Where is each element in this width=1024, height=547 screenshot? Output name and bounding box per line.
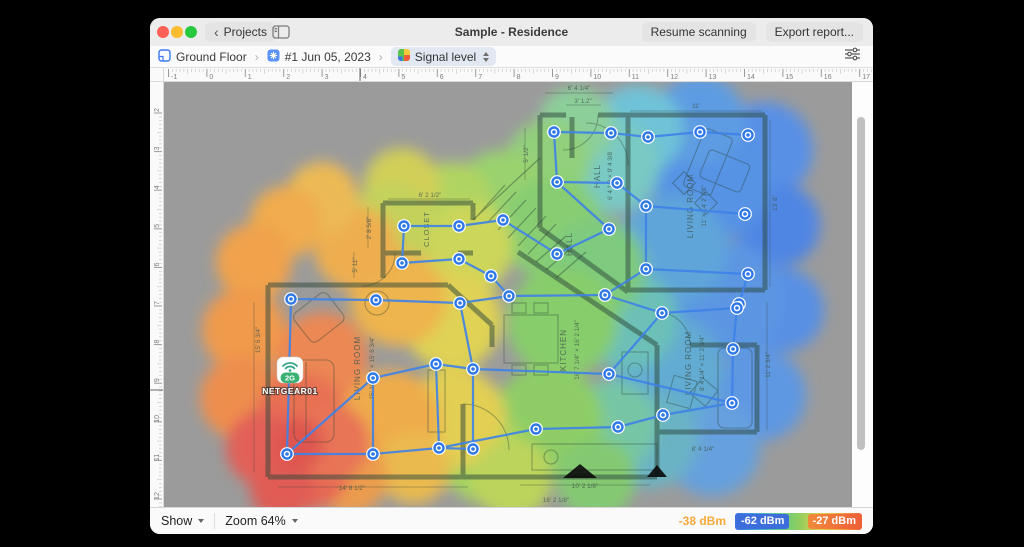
breadcrumb-toolbar: Ground Floor › #1 Jun 05, 2023 › [150, 46, 873, 68]
legend-min-badge: -62 dBm [736, 514, 789, 529]
svg-text:7: 7 [154, 301, 161, 305]
survey-point[interactable] [727, 343, 740, 356]
svg-text:15: 15 [785, 74, 793, 81]
svg-text:11: 11 [632, 74, 639, 81]
survey-point[interactable] [603, 223, 616, 236]
survey-point[interactable] [640, 200, 653, 213]
svg-text:16' 7 1/4" × 16' 2 1/4": 16' 7 1/4" × 16' 2 1/4" [574, 320, 581, 380]
svg-text:2: 2 [286, 74, 290, 81]
left-ruler: 23456789101112 [150, 82, 164, 507]
svg-text:5' 11": 5' 11" [352, 257, 359, 272]
survey-point[interactable] [605, 127, 618, 140]
survey-point[interactable] [367, 372, 380, 385]
snapshot-icon [267, 49, 280, 65]
svg-text:LIVING ROOM: LIVING ROOM [684, 331, 693, 395]
survey-point[interactable] [467, 363, 480, 376]
svg-text:3: 3 [154, 147, 161, 151]
survey-point[interactable] [548, 126, 561, 139]
cursor-signal-value: -38 dBm [679, 514, 726, 528]
svg-text:8: 8 [517, 74, 521, 81]
svg-text:4: 4 [154, 185, 161, 189]
svg-text:10: 10 [593, 74, 601, 81]
svg-text:HALL: HALL [565, 232, 574, 256]
svg-text:2' 8 5/8": 2' 8 5/8" [366, 217, 373, 240]
svg-text:10: 10 [154, 415, 161, 423]
svg-text:14: 14 [747, 74, 755, 81]
svg-text:-1: -1 [171, 74, 177, 81]
visualization-selector[interactable]: Signal level [391, 47, 496, 66]
svg-text:6' 4 1/2 × 9' 4 3/8: 6' 4 1/2 × 9' 4 3/8 [607, 151, 614, 200]
sidebar-toggle-icon[interactable] [272, 25, 290, 44]
app-window: ‹ Projects Sample - Residence Resume sca… [150, 18, 873, 534]
svg-text:11' × 14' 2 7/8": 11' × 14' 2 7/8" [701, 185, 708, 226]
survey-point[interactable] [642, 131, 655, 144]
survey-point[interactable] [530, 423, 543, 436]
svg-text:10' 2 1/8": 10' 2 1/8" [572, 483, 598, 490]
svg-text:1: 1 [248, 74, 252, 81]
survey-point[interactable] [281, 448, 294, 461]
heatmap-icon [398, 49, 410, 64]
svg-text:KITCHEN: KITCHEN [559, 329, 568, 371]
survey-point[interactable] [742, 268, 755, 281]
survey-point[interactable] [430, 358, 443, 371]
zoom-window-button[interactable] [185, 26, 197, 38]
back-button-label: Projects [224, 25, 267, 39]
survey-point[interactable] [656, 307, 669, 320]
survey-point[interactable] [742, 129, 755, 142]
svg-text:9: 9 [555, 74, 559, 81]
survey-point[interactable] [612, 421, 625, 434]
status-bar: Show Zoom 64% -38 dBm -62 dBm -27 dBm [150, 507, 873, 534]
svg-text:6' 2 1/2": 6' 2 1/2" [419, 192, 442, 199]
filter-sliders-icon[interactable] [844, 47, 861, 66]
svg-text:8: 8 [154, 340, 161, 344]
survey-point[interactable] [433, 442, 446, 455]
svg-text:3' 1.2": 3' 1.2" [574, 98, 591, 105]
svg-text:11': 11' [692, 103, 700, 110]
survey-point[interactable] [396, 257, 409, 270]
minimize-window-button[interactable] [171, 26, 183, 38]
survey-point[interactable] [551, 176, 564, 189]
survey-point[interactable] [453, 220, 466, 233]
survey-point[interactable] [726, 397, 739, 410]
signal-legend-gradient: -62 dBm -27 dBm [735, 513, 862, 530]
svg-text:0: 0 [209, 74, 213, 81]
svg-text:NETGEAR01: NETGEAR01 [262, 386, 318, 396]
svg-text:17: 17 [862, 74, 870, 81]
show-dropdown[interactable]: Show [161, 508, 214, 534]
survey-point[interactable] [640, 263, 653, 276]
top-ruler: -101234567891011121314151617 [164, 68, 873, 82]
back-chevron-icon: ‹ [214, 25, 219, 39]
chevron-down-icon [292, 519, 298, 523]
chevron-down-icon [198, 519, 204, 523]
scrollbar-track [852, 82, 873, 507]
export-report-button[interactable]: Export report... [766, 22, 863, 42]
svg-text:11: 11 [154, 454, 161, 461]
svg-text:6: 6 [440, 74, 444, 81]
svg-text:HALL: HALL [593, 164, 602, 188]
survey-point[interactable] [398, 220, 411, 233]
svg-text:5: 5 [154, 224, 161, 228]
survey-point[interactable] [731, 302, 744, 315]
svg-text:12: 12 [154, 492, 161, 500]
svg-text:9: 9 [154, 378, 161, 382]
breadcrumb-separator: › [255, 50, 259, 64]
breadcrumb: Ground Floor › #1 Jun 05, 2023 › [158, 47, 496, 66]
survey-point[interactable] [739, 208, 752, 221]
svg-text:6: 6 [154, 262, 161, 266]
survey-point[interactable] [611, 177, 624, 190]
survey-point[interactable] [367, 448, 380, 461]
heatmap-canvas[interactable]: CLOSETHALL6' 4 1/2 × 9' 4 3/8HALLLIVING … [164, 82, 852, 507]
breadcrumb-separator: › [379, 50, 383, 64]
survey-point[interactable] [453, 253, 466, 266]
survey-point[interactable] [603, 368, 616, 381]
floor-plan-icon [158, 49, 171, 65]
svg-text:5' 1/2": 5' 1/2" [523, 145, 530, 162]
svg-text:6' 4 1/4": 6' 4 1/4" [568, 85, 591, 92]
svg-text:5: 5 [401, 74, 405, 81]
svg-text:16: 16 [824, 74, 832, 81]
back-to-projects-button[interactable]: ‹ Projects [205, 22, 276, 42]
vertical-scrollbar-thumb[interactable] [857, 117, 865, 450]
svg-text:12: 12 [670, 74, 678, 81]
breadcrumb-snapshot[interactable]: #1 Jun 05, 2023 [285, 50, 371, 64]
svg-text:LIVING ROOM: LIVING ROOM [686, 174, 695, 238]
survey-point[interactable] [285, 293, 298, 306]
legend-max-badge: -27 dBm [808, 514, 861, 529]
resume-scanning-button[interactable]: Resume scanning [642, 22, 756, 42]
survey-point[interactable] [467, 443, 480, 456]
chevron-up-down-icon [483, 52, 489, 62]
breadcrumb-floor[interactable]: Ground Floor [176, 50, 247, 64]
svg-text:7: 7 [478, 74, 482, 81]
svg-text:3: 3 [325, 74, 329, 81]
svg-text:14' 8 1/2": 14' 8 1/2" [339, 485, 365, 492]
visualization-label: Signal level [415, 50, 476, 64]
survey-point[interactable] [485, 270, 498, 283]
svg-text:11' 2 3/4": 11' 2 3/4" [765, 352, 772, 378]
survey-point[interactable] [370, 294, 383, 307]
svg-text:4: 4 [363, 74, 367, 81]
survey-point[interactable] [694, 126, 707, 139]
close-window-button[interactable] [157, 26, 169, 38]
survey-point[interactable] [657, 409, 670, 422]
svg-text:15' 6 3/4": 15' 6 3/4" [255, 327, 262, 353]
svg-text:8' 4 1/4" × 11' 2 3/4": 8' 4 1/4" × 11' 2 3/4" [699, 335, 706, 391]
svg-text:8' 4 1/4": 8' 4 1/4" [692, 446, 715, 453]
svg-text:2G: 2G [285, 374, 295, 383]
svg-text:2: 2 [154, 108, 161, 112]
survey-point[interactable] [503, 290, 516, 303]
survey-point[interactable] [551, 248, 564, 261]
svg-text:16' 2 1/8": 16' 2 1/8" [543, 497, 569, 504]
survey-point[interactable] [454, 297, 467, 310]
svg-text:13' 8": 13' 8" [772, 195, 779, 211]
title-bar: ‹ Projects Sample - Residence Resume sca… [150, 18, 873, 47]
survey-point[interactable] [599, 289, 612, 302]
survey-point[interactable] [497, 214, 510, 227]
ruler-corner [150, 68, 164, 82]
svg-text:13: 13 [709, 74, 717, 81]
zoom-dropdown[interactable]: Zoom 64% [215, 508, 307, 534]
svg-text:CLOSET: CLOSET [422, 211, 431, 247]
